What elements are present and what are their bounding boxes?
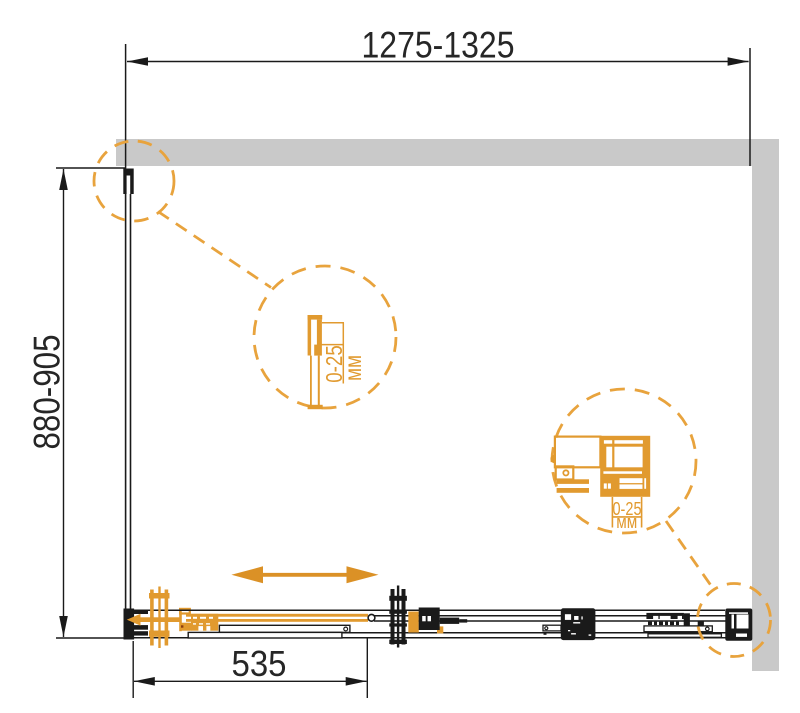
- svg-text:1275-1325: 1275-1325: [362, 25, 515, 66]
- svg-text:535: 535: [232, 643, 287, 684]
- svg-text:мм: мм: [340, 355, 366, 381]
- svg-text:мм: мм: [616, 511, 637, 532]
- svg-text:880-905: 880-905: [27, 335, 68, 450]
